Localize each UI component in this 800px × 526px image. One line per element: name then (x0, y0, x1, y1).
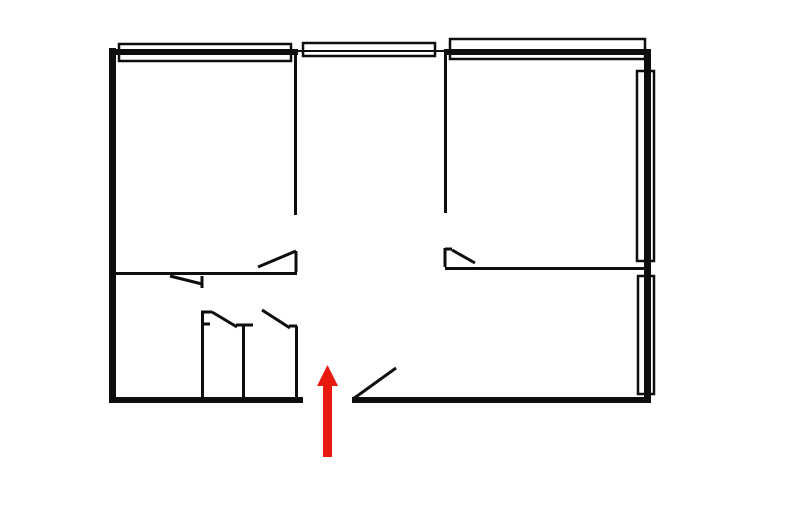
top-wall-right (444, 49, 651, 55)
floor-plan-canvas (0, 0, 800, 526)
entrance-arrow-head (317, 365, 338, 386)
door-right-room-seg-2 (452, 250, 475, 263)
left-wall (109, 48, 116, 402)
entrance-arrow-shaft (323, 384, 332, 457)
door-left-room-seg-1 (258, 251, 296, 267)
top-wall-left (109, 49, 298, 55)
door-hallway-seg-0 (170, 276, 202, 284)
floor-plan-svg (0, 0, 800, 526)
right-wall (644, 49, 651, 402)
door-bathroom-seg-0 (262, 310, 290, 328)
door-entrance-seg-0 (353, 368, 396, 399)
bottom-wall-left (109, 397, 303, 403)
bottom-wall-right (352, 397, 651, 403)
door-wc-seg-2 (212, 312, 237, 327)
window-top-middle (303, 43, 435, 56)
